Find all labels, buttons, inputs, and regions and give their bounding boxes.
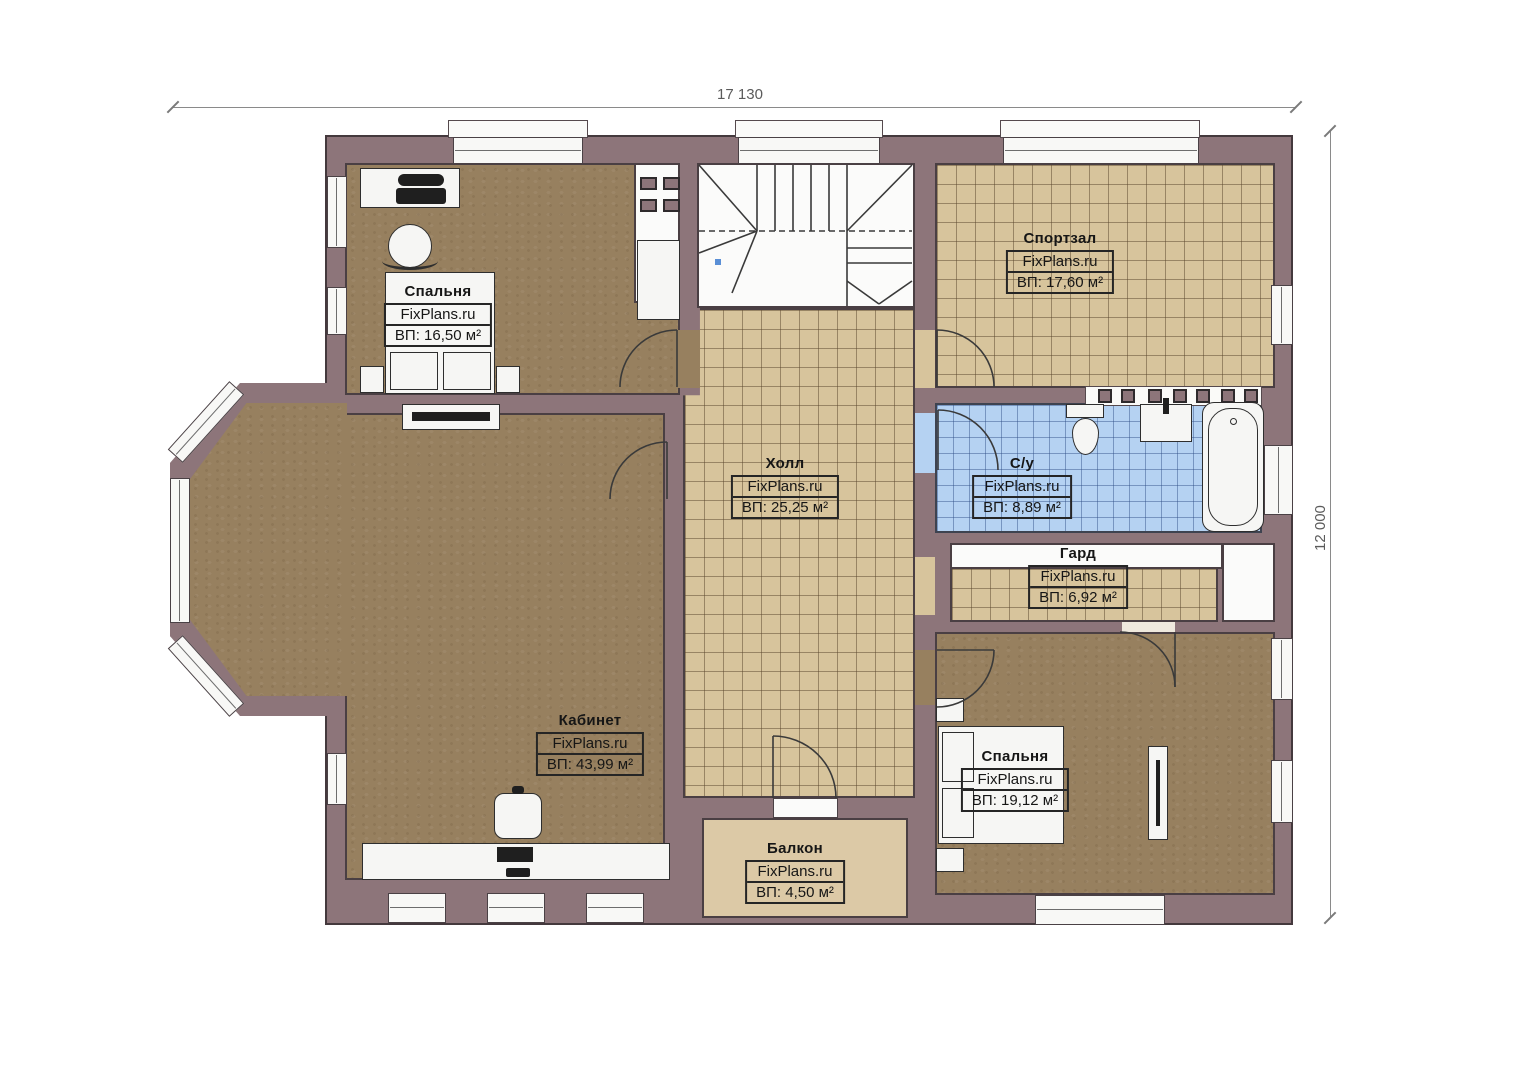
door-opening [773, 798, 838, 818]
cabinet-tile-icon [1221, 389, 1235, 403]
right-dimension-label: 12 000 [1312, 488, 1329, 568]
door-arc [620, 330, 677, 387]
wardrobe-cabinet [1222, 543, 1275, 622]
office-chair-icon [494, 793, 542, 839]
dresser-handle-icon [1156, 760, 1160, 826]
nightstand-icon [496, 366, 520, 393]
window [1271, 285, 1293, 345]
toilet-icon [1066, 404, 1104, 418]
office-chair-icon [512, 786, 524, 794]
pillow-icon [443, 352, 491, 390]
room-brand: FixPlans.ru [733, 477, 837, 498]
door-opening [915, 557, 935, 615]
room-name: Спортзал [1006, 230, 1114, 247]
top-dimension-label: 17 130 [700, 86, 780, 103]
door-arc [937, 330, 994, 387]
window [1271, 760, 1293, 823]
window [738, 137, 880, 164]
room-area: ВП: 25,25 м² [733, 498, 837, 517]
room-area: ВП: 8,89 м² [974, 498, 1070, 517]
top-dimension-line [172, 107, 1296, 108]
door-arc [610, 442, 667, 499]
room-label-balcony: Балкон FixPlans.ru ВП: 4,50 м² [745, 840, 845, 904]
room-name: Спальня [961, 748, 1069, 765]
room-name: Балкон [745, 840, 845, 857]
window [586, 893, 644, 923]
window-sill [1000, 120, 1200, 138]
room-brand: FixPlans.ru [1030, 567, 1126, 588]
room-hall-floor [683, 308, 915, 798]
room-name: Гард [1028, 545, 1128, 562]
window [1271, 638, 1293, 700]
window-sill [735, 120, 883, 138]
room-area: ВП: 19,12 м² [963, 791, 1067, 810]
stair-node [715, 259, 721, 265]
door-opening [1122, 622, 1175, 632]
room-brand: FixPlans.ru [538, 734, 642, 755]
shaft-icon [640, 177, 657, 190]
door-opening [915, 650, 935, 705]
door-opening [915, 330, 935, 388]
room-label-bedroom-2: Спальня FixPlans.ru ВП: 19,12 м² [961, 748, 1069, 812]
closet-cabinet-icon [637, 240, 680, 320]
room-label-gym: Спортзал FixPlans.ru ВП: 17,60 м² [1006, 230, 1114, 294]
tv-icon [412, 412, 490, 421]
window-sill [448, 120, 588, 138]
office-chair-icon [382, 252, 438, 270]
shaft-icon [663, 199, 680, 212]
room-label-wardrobe: Гард FixPlans.ru ВП: 6,92 м² [1028, 545, 1128, 609]
nightstand-icon [936, 848, 964, 872]
door-arc [937, 650, 994, 707]
pillow-icon [390, 352, 438, 390]
window [327, 753, 347, 805]
printer-icon [396, 188, 446, 204]
cabinet-tile-icon [1244, 389, 1258, 403]
window [388, 893, 446, 923]
door-opening [915, 413, 935, 473]
window [170, 478, 190, 623]
window [327, 176, 347, 248]
room-brand: FixPlans.ru [747, 862, 843, 883]
room-label-office: Кабинет FixPlans.ru ВП: 43,99 м² [536, 712, 644, 776]
window [453, 137, 583, 164]
cabinet-tile-icon [1196, 389, 1210, 403]
door-arc [773, 736, 836, 798]
right-dimension-line [1330, 131, 1331, 918]
room-brand: FixPlans.ru [1008, 252, 1112, 273]
room-area: ВП: 43,99 м² [538, 755, 642, 774]
window [1003, 137, 1199, 164]
cabinet-tile-icon [1098, 389, 1112, 403]
staircase [697, 163, 915, 308]
keyboard-icon [506, 868, 530, 877]
window [327, 287, 347, 335]
room-brand: FixPlans.ru [386, 305, 490, 326]
window [1035, 895, 1165, 925]
shaft-icon [663, 177, 680, 190]
door-opening [677, 330, 700, 388]
floor-plan: 17 130 12 000 [0, 0, 1528, 1080]
drain-icon [1230, 418, 1237, 425]
room-area: ВП: 17,60 м² [1008, 273, 1112, 292]
room-area: ВП: 16,50 м² [386, 326, 490, 345]
cabinet-tile-icon [1121, 389, 1135, 403]
room-brand: FixPlans.ru [963, 770, 1067, 791]
room-label-bathroom: С/у FixPlans.ru ВП: 8,89 м² [972, 455, 1072, 519]
room-label-bedroom-1: Спальня FixPlans.ru ВП: 16,50 м² [384, 283, 492, 347]
window [487, 893, 545, 923]
room-area: ВП: 4,50 м² [747, 883, 843, 902]
window [1264, 445, 1293, 515]
faucet-icon [1163, 398, 1169, 414]
room-name: С/у [972, 455, 1072, 472]
monitor-icon [497, 847, 533, 862]
room-brand: FixPlans.ru [974, 477, 1070, 498]
cabinet-tile-icon [1148, 389, 1162, 403]
room-area: ВП: 6,92 м² [1030, 588, 1126, 607]
room-name: Кабинет [536, 712, 644, 729]
room-name: Холл [731, 455, 839, 472]
room-name: Спальня [384, 283, 492, 300]
printer-icon [398, 174, 444, 186]
room-label-hall: Холл FixPlans.ru ВП: 25,25 м² [731, 455, 839, 519]
door-arc [1120, 632, 1175, 687]
cabinet-tile-icon [1173, 389, 1187, 403]
nightstand-icon [360, 366, 384, 393]
shaft-icon [640, 199, 657, 212]
bathtub-icon [1208, 408, 1258, 526]
